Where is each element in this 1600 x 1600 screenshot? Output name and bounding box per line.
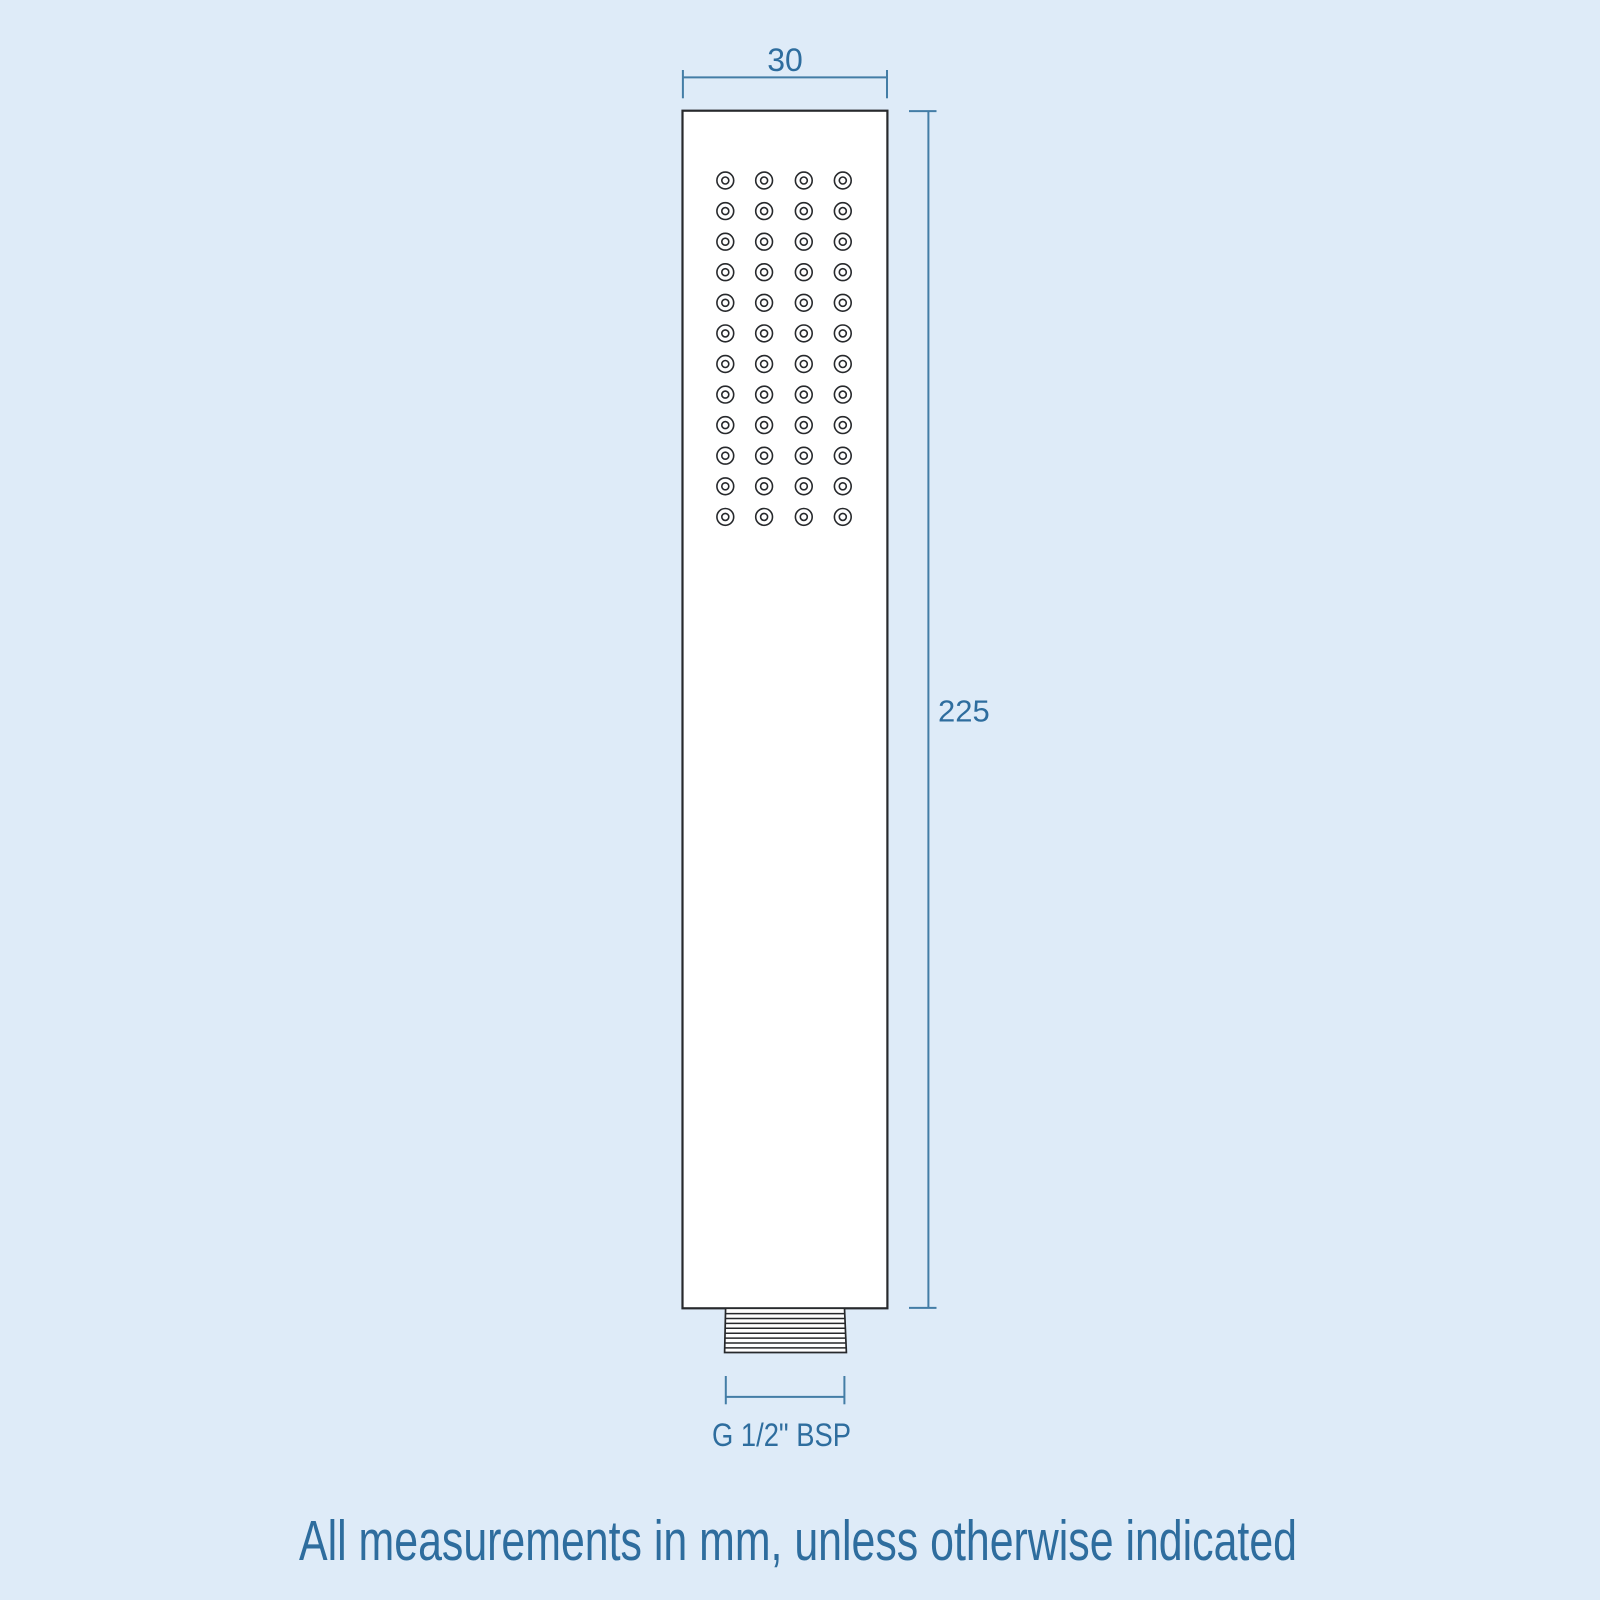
svg-text:30: 30 — [767, 42, 803, 78]
svg-text:G 1/2" BSP: G 1/2" BSP — [712, 1417, 851, 1453]
svg-text:All measurements in mm, unless: All measurements in mm, unless otherwise… — [299, 1509, 1297, 1573]
svg-text:225: 225 — [938, 694, 990, 729]
